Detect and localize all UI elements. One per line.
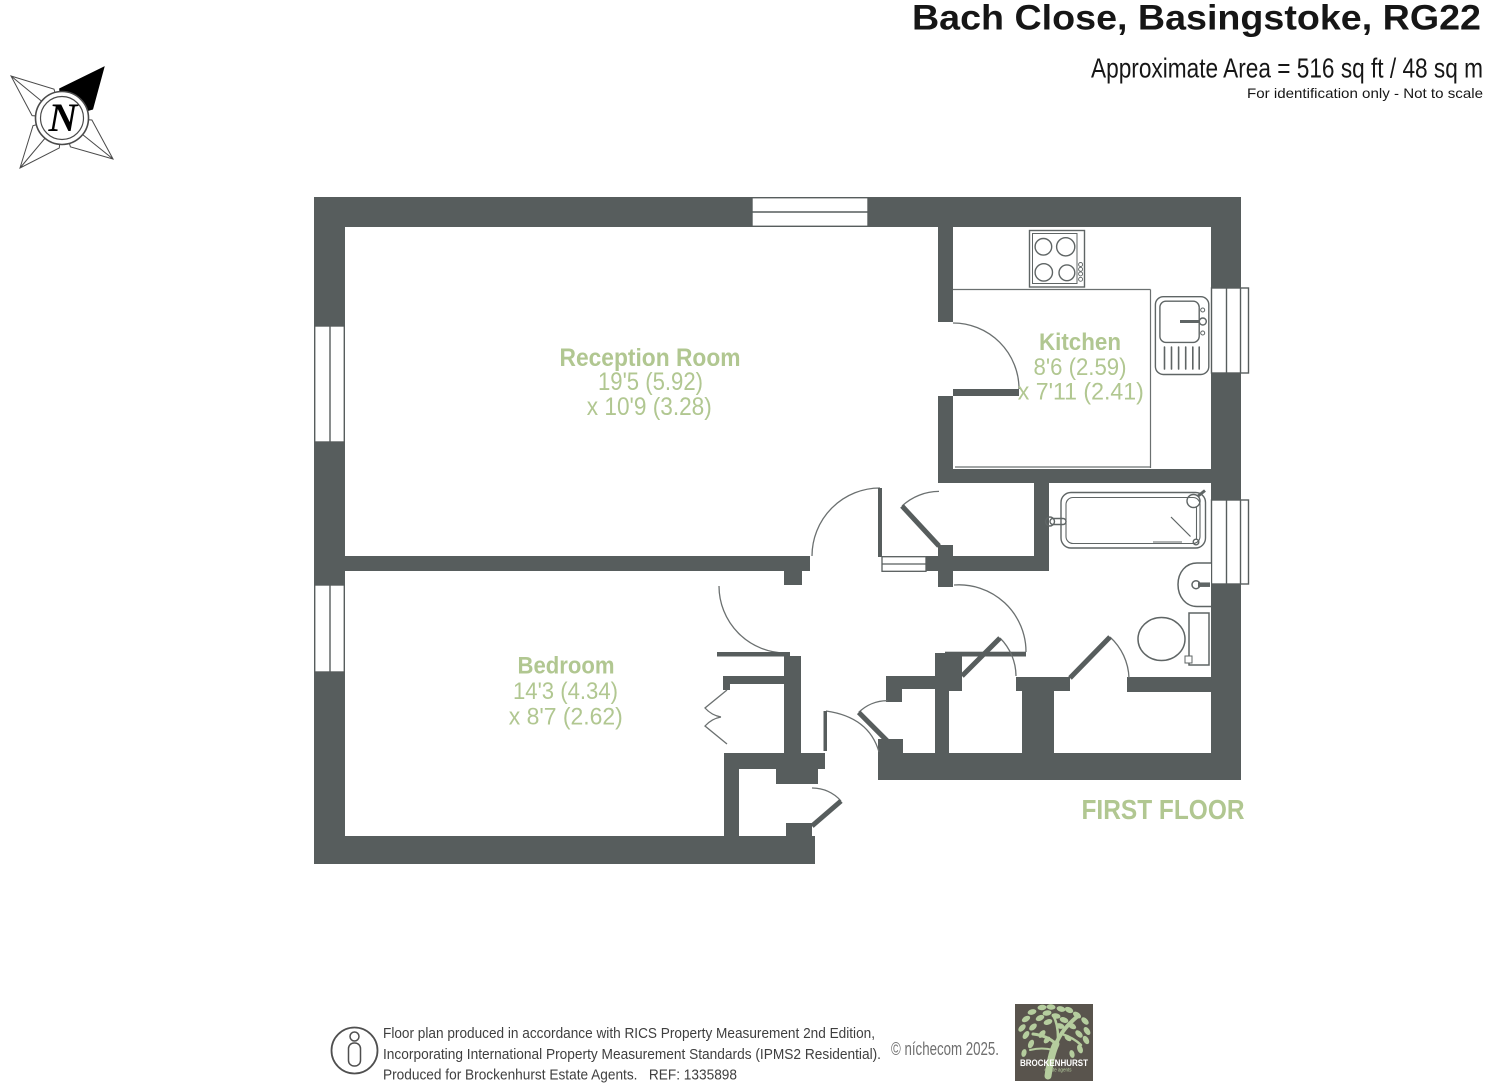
svg-text:x 7'11 (2.41): x 7'11 (2.41) — [1018, 378, 1144, 405]
svg-text:Floor plan produced in accorda: Floor plan produced in accordance with R… — [383, 1026, 875, 1042]
svg-text:x 8'7 (2.62): x 8'7 (2.62) — [509, 704, 623, 731]
svg-text:Approximate Area = 516 sq ft /: Approximate Area = 516 sq ft / 48 sq m — [1091, 53, 1483, 84]
svg-text:Produced for Brockenhurst Esta: Produced for Brockenhurst Estate Agents.… — [383, 1068, 737, 1084]
svg-text:FIRST FLOOR: FIRST FLOOR — [1082, 794, 1245, 825]
svg-text:Kitchen: Kitchen — [1039, 329, 1121, 356]
svg-text:Bach Close, Basingstoke, RG22: Bach Close, Basingstoke, RG22 — [912, 0, 1481, 38]
svg-text:estate agents: estate agents — [1045, 1068, 1072, 1074]
svg-text:For identification only - Not: For identification only - Not to scale — [1247, 85, 1483, 101]
svg-text:N: N — [48, 95, 80, 140]
svg-text:© níchecom 2025.: © níchecom 2025. — [891, 1039, 999, 1059]
svg-text:Incorporating International Pr: Incorporating International Property Mea… — [383, 1047, 881, 1063]
svg-text:8'6 (2.59): 8'6 (2.59) — [1034, 354, 1127, 381]
svg-text:Bedroom: Bedroom — [518, 653, 615, 680]
svg-text:19'5 (5.92): 19'5 (5.92) — [598, 368, 703, 396]
svg-text:14'3 (4.34): 14'3 (4.34) — [513, 678, 618, 705]
svg-text:x 10'9 (3.28): x 10'9 (3.28) — [587, 393, 712, 421]
